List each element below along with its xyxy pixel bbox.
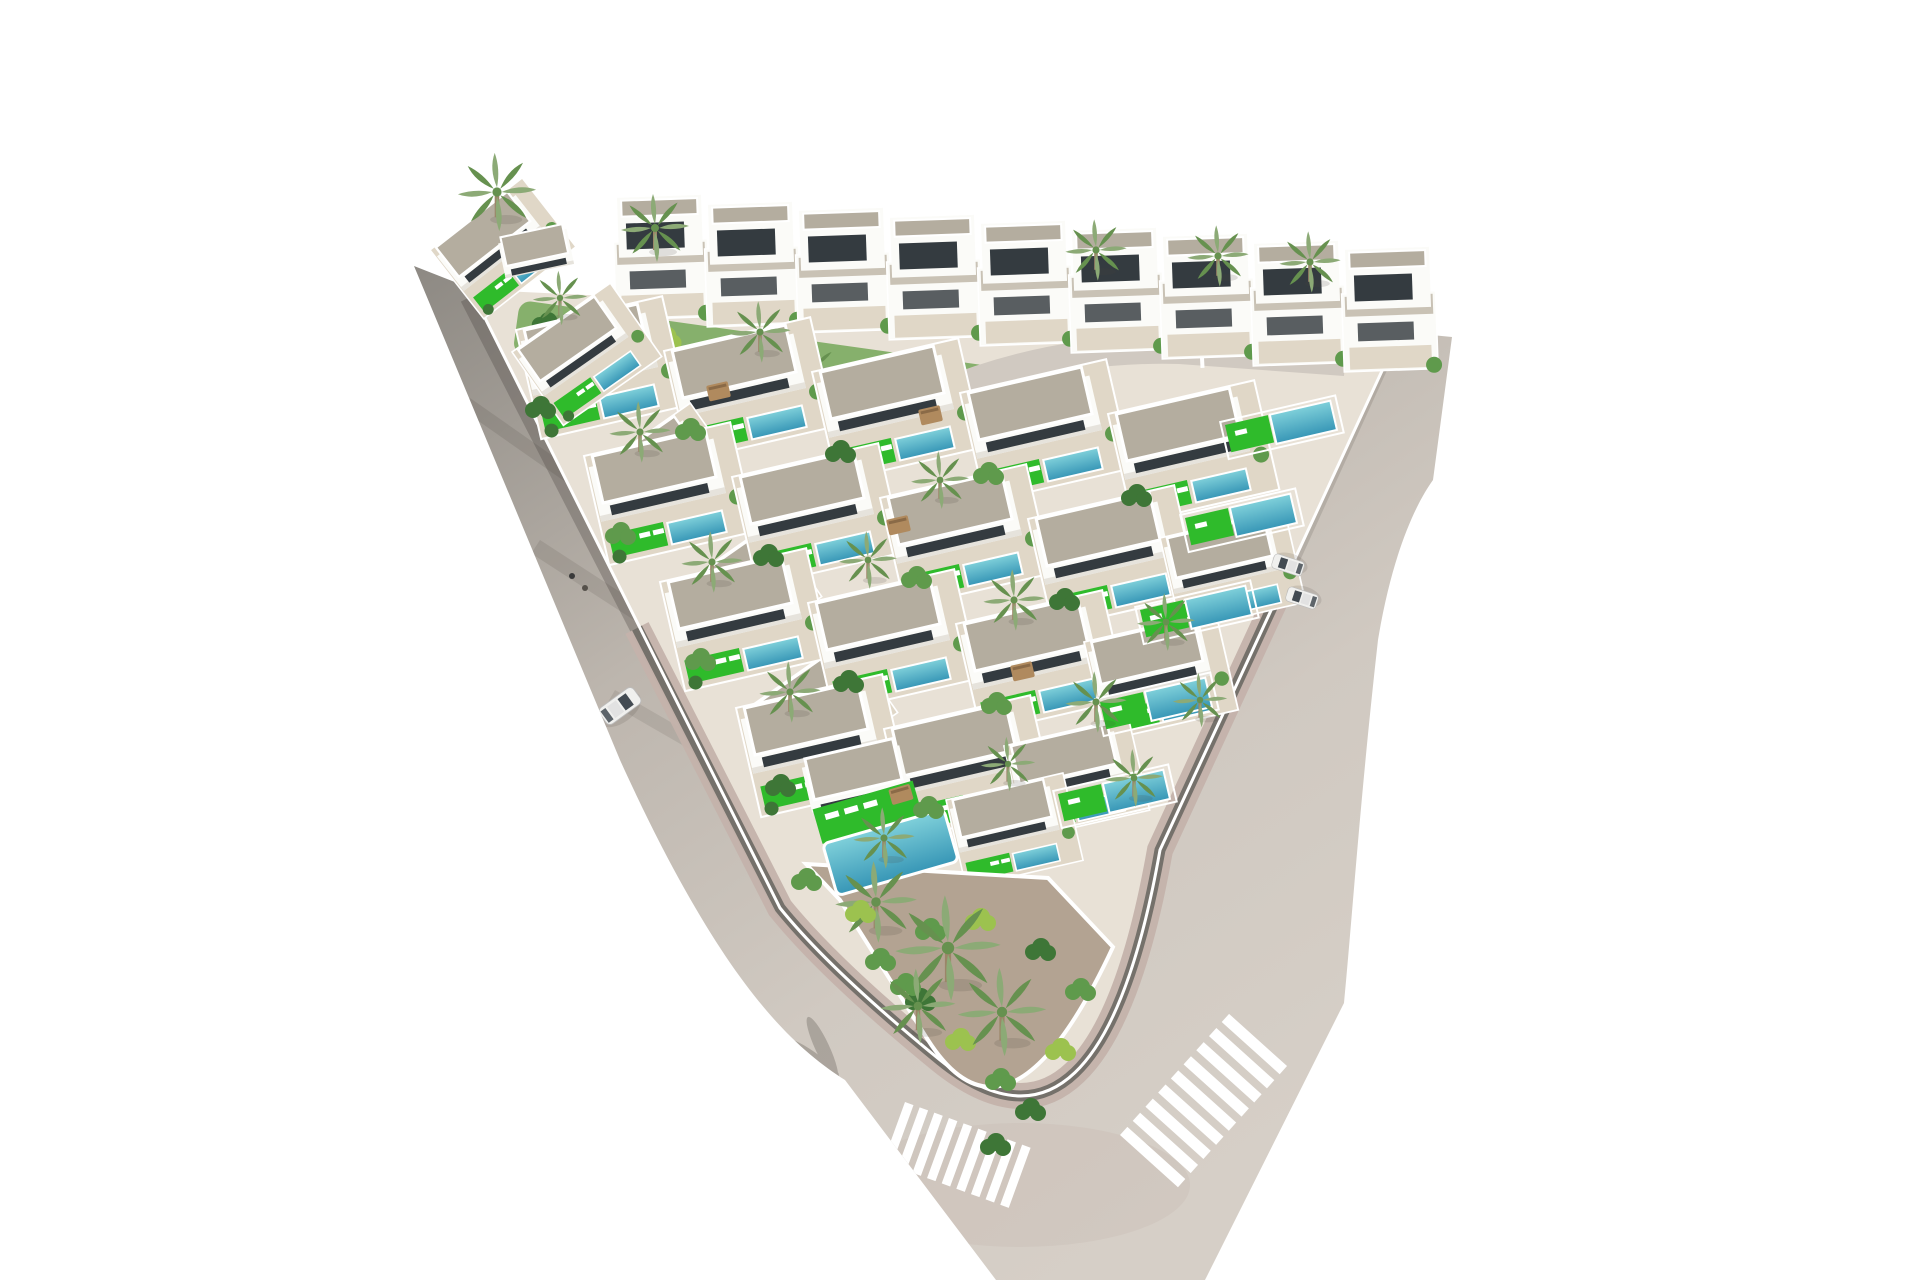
two-story-villa: [1158, 234, 1260, 363]
render-canvas: [0, 0, 1920, 1280]
two-story-villa: [885, 215, 987, 344]
two-story-villa: [976, 221, 1078, 350]
two-story-villa: [1340, 247, 1442, 376]
pedestrian: [582, 585, 588, 591]
two-story-villa: [703, 202, 805, 331]
aerial-development-render: [0, 0, 1920, 1280]
street-dash: [1200, 358, 1205, 368]
pedestrian: [569, 573, 575, 579]
